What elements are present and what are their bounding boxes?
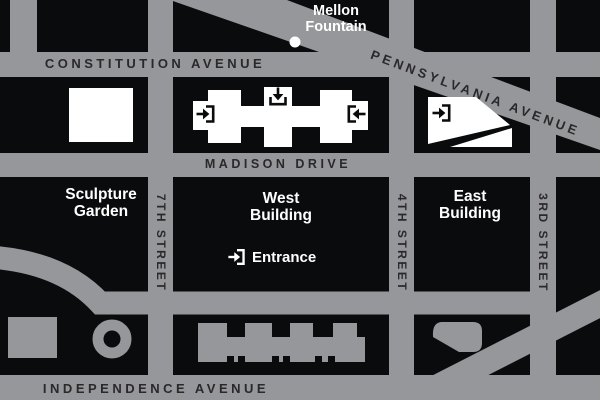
west-entrance-arrow-right-icon xyxy=(227,247,247,267)
building-footprint-square xyxy=(69,88,133,142)
east-building-line2: Building xyxy=(439,205,501,222)
east-entrance-arrow-right-icon xyxy=(431,102,453,124)
constitution-avenue-label: CONSTITUTION AVENUE xyxy=(45,56,265,71)
mellon-fountain-line2: Fountain xyxy=(305,19,366,35)
entrance-arrow-down-icon xyxy=(267,86,289,108)
seventh-street-label: 7TH STREET xyxy=(154,194,168,292)
sculpture-garden-line1: Sculpture xyxy=(65,186,136,203)
independence-avenue-label: INDEPENDENCE AVENUE xyxy=(43,381,269,396)
fountain-dot-icon xyxy=(290,37,301,48)
hirshhorn-ring-footprint xyxy=(98,325,126,353)
mellon-fountain-line1: Mellon xyxy=(313,3,359,19)
third-street-label: 3RD STREET xyxy=(536,193,550,293)
national-gallery-area-map: CONSTITUTION AVENUE PENNSYLVANIA AVENUE … xyxy=(0,0,600,400)
fourth-street-label: 4TH STREET xyxy=(395,194,409,292)
sculpture-garden-label: Sculpture Garden xyxy=(65,186,136,220)
crenellated-building-footprint xyxy=(198,323,365,362)
entrance-arrow-left-icon xyxy=(345,103,367,125)
west-building-label: West Building xyxy=(250,190,312,224)
entrance-arrow-right-icon xyxy=(195,103,217,125)
west-building-line1: West xyxy=(263,190,300,207)
rounded-building-footprint xyxy=(433,322,482,352)
mellon-fountain-label: Mellon Fountain xyxy=(305,3,366,35)
entrance-label: Entrance xyxy=(252,249,316,266)
sculpture-garden-line2: Garden xyxy=(74,203,128,220)
east-building-label: East Building xyxy=(439,188,501,222)
madison-drive-label: MADISON DRIVE xyxy=(205,157,351,171)
west-building-line2: Building xyxy=(250,207,312,224)
street-stub-top-left xyxy=(10,0,37,52)
building-footprint-small-square xyxy=(8,317,57,358)
east-building-line1: East xyxy=(454,188,487,205)
